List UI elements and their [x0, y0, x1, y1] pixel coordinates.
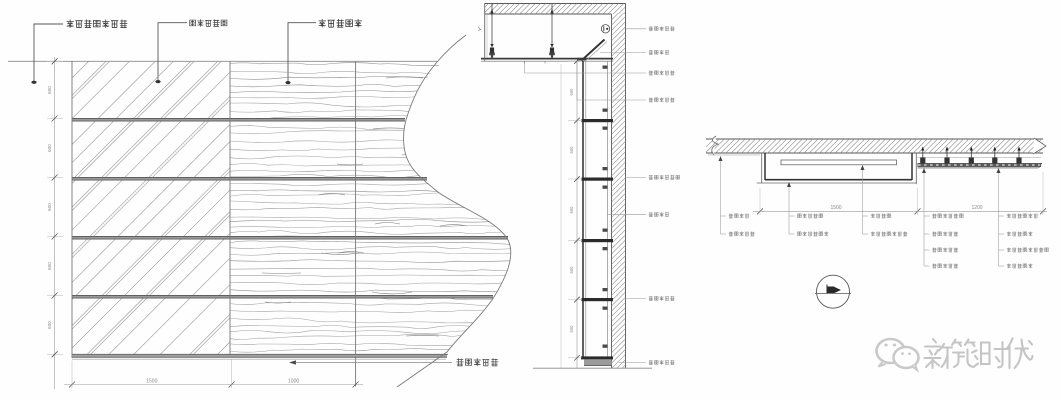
svg-text:600: 600 [569, 206, 574, 214]
svg-text:1500: 1500 [146, 378, 157, 384]
svg-text:600: 600 [47, 321, 52, 329]
svg-text:600: 600 [47, 203, 52, 211]
svg-text:600: 600 [47, 86, 52, 94]
svg-text:600: 600 [569, 325, 574, 333]
svg-text:600: 600 [569, 88, 574, 96]
svg-text:1000: 1000 [288, 378, 299, 384]
svg-text:600: 600 [47, 144, 52, 152]
svg-text:600: 600 [569, 266, 574, 274]
svg-text:1200: 1200 [971, 205, 982, 211]
svg-text:1500: 1500 [830, 205, 841, 211]
svg-text:600: 600 [569, 146, 574, 154]
svg-text:600: 600 [47, 262, 52, 270]
